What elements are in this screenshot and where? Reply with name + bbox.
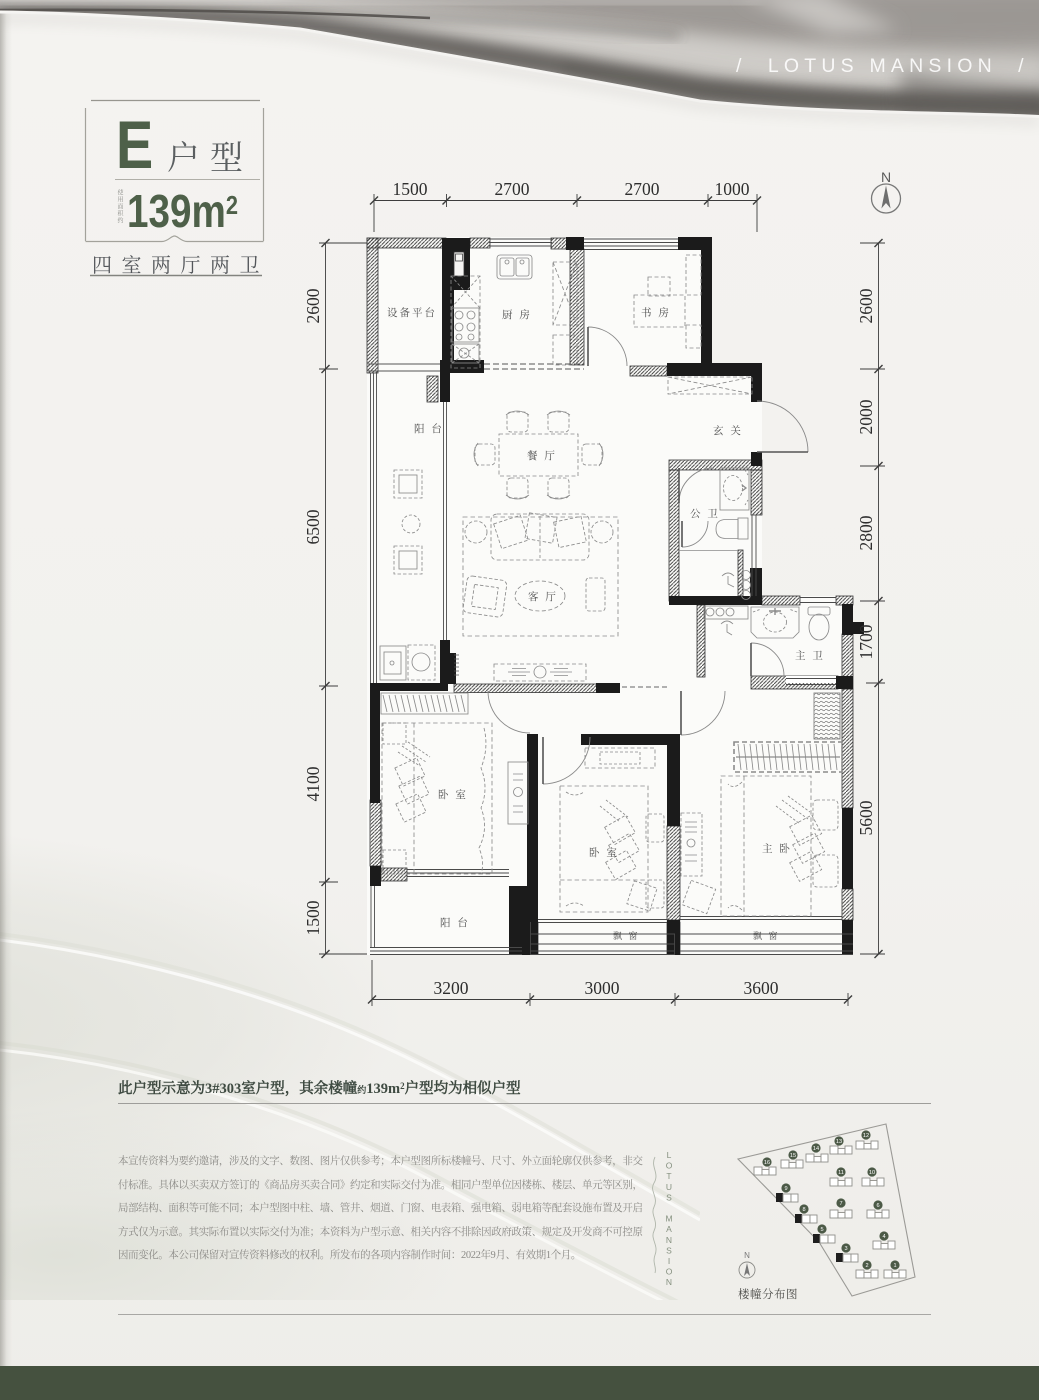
svg-text:餐 厅: 餐 厅 <box>527 448 557 463</box>
svg-text:主 卧: 主 卧 <box>762 841 792 856</box>
svg-text:6500: 6500 <box>303 509 323 544</box>
svg-text:设备平台: 设备平台 <box>387 305 437 320</box>
svg-text:5600: 5600 <box>856 800 876 835</box>
svg-text:5: 5 <box>820 1227 823 1233</box>
svg-text:15: 15 <box>790 1153 796 1159</box>
svg-text:3: 3 <box>844 1246 847 1252</box>
svg-text:玄 关: 玄 关 <box>713 423 743 438</box>
svg-text:1: 1 <box>893 1263 896 1269</box>
svg-text:卧 室: 卧 室 <box>589 845 619 860</box>
svg-text:6: 6 <box>876 1203 879 1209</box>
svg-text:4100: 4100 <box>303 766 323 801</box>
svg-text:1500: 1500 <box>303 900 323 935</box>
svg-text:3200: 3200 <box>434 978 469 998</box>
svg-text:厨 房: 厨 房 <box>502 307 532 322</box>
svg-text:1000: 1000 <box>715 179 750 199</box>
svg-text:3600: 3600 <box>744 978 779 998</box>
svg-text:1700: 1700 <box>856 624 876 659</box>
svg-text:公 卫: 公 卫 <box>690 506 720 521</box>
svg-text:2600: 2600 <box>303 288 323 323</box>
svg-text:16: 16 <box>764 1160 770 1166</box>
svg-text:3000: 3000 <box>585 978 620 998</box>
svg-text:客 厅: 客 厅 <box>528 589 558 604</box>
svg-text:阳 台: 阳 台 <box>414 421 444 436</box>
svg-text:9: 9 <box>784 1186 787 1192</box>
svg-text:12: 12 <box>863 1133 869 1139</box>
svg-text:2: 2 <box>865 1263 868 1269</box>
svg-text:13: 13 <box>836 1139 842 1145</box>
svg-text:阳 台: 阳 台 <box>440 915 470 930</box>
svg-text:飘 窗: 飘 窗 <box>753 929 780 942</box>
svg-text:10: 10 <box>869 1170 875 1176</box>
svg-text:11: 11 <box>838 1170 844 1176</box>
svg-text:主 卫: 主 卫 <box>795 648 825 663</box>
svg-text:1500: 1500 <box>393 179 428 199</box>
svg-text:2800: 2800 <box>856 515 876 550</box>
svg-text:4: 4 <box>882 1234 885 1240</box>
svg-text:N: N <box>744 1251 750 1260</box>
svg-text:2700: 2700 <box>495 179 530 199</box>
svg-text:2600: 2600 <box>856 288 876 323</box>
svg-text:飘 窗: 飘 窗 <box>613 929 640 942</box>
svg-text:7: 7 <box>839 1201 842 1207</box>
svg-text:N: N <box>881 169 891 185</box>
svg-text:14: 14 <box>813 1146 819 1152</box>
svg-text:书 房: 书 房 <box>641 305 671 320</box>
svg-text:2000: 2000 <box>856 399 876 434</box>
svg-text:2700: 2700 <box>625 179 660 199</box>
svg-text:8: 8 <box>802 1207 805 1213</box>
svg-text:卧 室: 卧 室 <box>438 787 468 802</box>
svg-text:楼幢分布图: 楼幢分布图 <box>738 1286 798 1302</box>
